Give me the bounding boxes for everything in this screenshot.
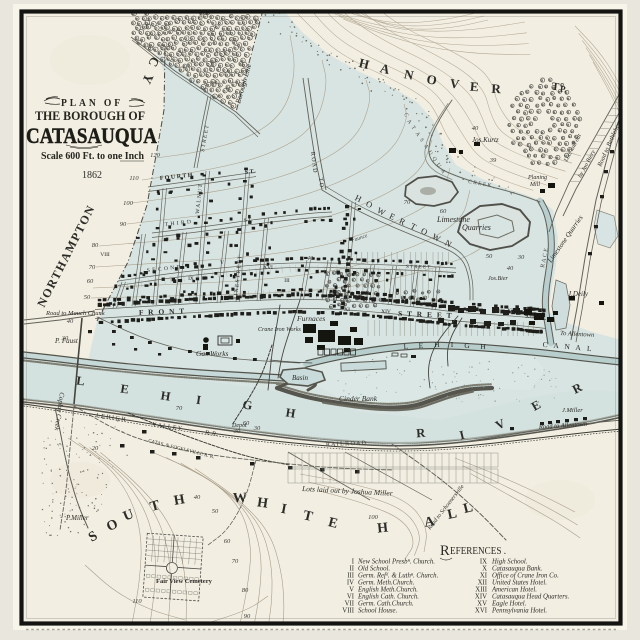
svg-text:50: 50: [212, 508, 219, 515]
svg-text:XIII: XIII: [525, 314, 535, 320]
svg-text:IX: IX: [480, 559, 487, 566]
svg-text:80: 80: [92, 242, 99, 249]
svg-text:R: R: [491, 81, 502, 97]
svg-text:Cinder Bank: Cinder Bank: [339, 394, 378, 403]
svg-text:THE BOROUGH OF: THE BOROUGH OF: [35, 108, 145, 123]
svg-text:60: 60: [224, 538, 231, 545]
svg-text:40: 40: [507, 265, 514, 272]
svg-text:Jos.Kurtz: Jos.Kurtz: [472, 136, 499, 144]
svg-text:W: W: [233, 491, 248, 506]
svg-text:High School.: High School.: [491, 559, 528, 566]
svg-text:Crane Iron Works: Crane Iron Works: [258, 327, 302, 333]
svg-text:S T.: S T.: [244, 217, 254, 224]
svg-text:J.Deily: J.Deily: [568, 290, 589, 298]
svg-text:70: 70: [89, 264, 96, 271]
svg-text:S T.: S T.: [245, 169, 256, 176]
svg-text:S T R E E T: S T R E E T: [406, 265, 430, 270]
svg-text:S T R E E T: S T R E E T: [398, 309, 453, 320]
svg-text:Eagle Hotel.: Eagle Hotel.: [491, 601, 527, 608]
svg-text:H: H: [480, 342, 486, 351]
svg-text:20: 20: [92, 445, 99, 452]
svg-text:30: 30: [233, 428, 241, 435]
svg-text:H: H: [376, 520, 389, 536]
svg-text:50: 50: [486, 253, 493, 260]
svg-text:Germ. Cath.Church.: Germ. Cath.Church.: [358, 601, 414, 608]
svg-text:70: 70: [404, 199, 411, 206]
svg-text:III: III: [347, 573, 355, 580]
svg-text:II: II: [349, 566, 354, 573]
svg-text:Catasauqua Bank.: Catasauqua Bank.: [492, 566, 543, 573]
svg-text:Gas Works: Gas Works: [196, 349, 229, 358]
svg-text:Furnaces: Furnaces: [296, 314, 325, 323]
svg-text:E: E: [469, 79, 479, 95]
svg-text:XI: XI: [344, 307, 350, 313]
svg-text:C: C: [542, 340, 548, 349]
svg-text:Pennsylvania Hotel.: Pennsylvania Hotel.: [491, 608, 547, 615]
svg-text:Scale 600 Ft. to one Inch: Scale 600 Ft. to one Inch: [41, 151, 144, 162]
svg-text:40: 40: [472, 125, 479, 132]
svg-text:V: V: [349, 587, 354, 594]
svg-text:H: H: [434, 340, 440, 349]
svg-text:CATASAUQUA: CATASAUQUA: [26, 123, 157, 148]
svg-text:30: 30: [253, 425, 261, 432]
svg-text:P.: P.: [559, 84, 567, 95]
svg-text:90: 90: [244, 613, 251, 620]
svg-text:40: 40: [194, 494, 201, 501]
svg-text:VI: VI: [347, 594, 355, 601]
svg-text:G: G: [464, 341, 470, 350]
svg-text:Jos.Bier: Jos.Bier: [488, 276, 508, 282]
svg-text:30: 30: [61, 335, 69, 342]
svg-text:100: 100: [123, 200, 134, 207]
svg-text:E: E: [418, 341, 423, 350]
svg-text:American Hotel.: American Hotel.: [491, 587, 537, 594]
svg-text:XIV: XIV: [475, 594, 487, 601]
svg-text:School House.: School House.: [358, 608, 398, 615]
svg-text:United States Hotel.: United States Hotel.: [492, 580, 547, 587]
svg-text:Planing: Planing: [527, 175, 547, 181]
svg-text:90: 90: [120, 221, 127, 228]
svg-text:110: 110: [129, 175, 139, 182]
svg-text:P.Miller: P.Miller: [65, 514, 89, 522]
svg-text:IV: IV: [347, 580, 354, 587]
svg-text:30: 30: [517, 254, 525, 261]
svg-text:XVI: XVI: [263, 265, 273, 271]
svg-text:39: 39: [489, 157, 497, 164]
svg-text:IV: IV: [410, 296, 416, 302]
svg-text:XI: XI: [480, 573, 488, 580]
svg-text:XII: XII: [507, 308, 515, 314]
svg-text:110: 110: [132, 598, 142, 605]
svg-text:Germ. Refᵈ. & Luthⁿ. Church.: Germ. Refᵈ. & Luthⁿ. Church.: [358, 573, 439, 580]
svg-text:EFERENCES .: EFERENCES .: [450, 546, 506, 557]
svg-text:100: 100: [368, 514, 379, 521]
svg-text:1862: 1862: [82, 170, 102, 181]
svg-text:X: X: [482, 566, 487, 573]
svg-text:Road to Mauch Chunk: Road to Mauch Chunk: [45, 310, 105, 317]
svg-text:English Meth.Church.: English Meth.Church.: [357, 587, 418, 594]
svg-text:J.Miller: J.Miller: [562, 407, 583, 414]
svg-text:60: 60: [87, 278, 94, 285]
svg-text:III: III: [284, 278, 290, 284]
svg-text:Fair View Cemetery: Fair View Cemetery: [156, 578, 213, 585]
svg-text:II: II: [250, 184, 254, 190]
svg-text:V: V: [220, 260, 224, 266]
svg-text:VIII: VIII: [100, 252, 110, 258]
svg-text:English Cath. Church.: English Cath. Church.: [357, 594, 419, 601]
svg-text:120: 120: [150, 152, 161, 159]
svg-text:XIV: XIV: [381, 309, 391, 315]
svg-text:IX: IX: [188, 276, 194, 282]
svg-text:New School Presbⁿ. Church.: New School Presbⁿ. Church.: [357, 559, 435, 566]
svg-text:XVI: XVI: [475, 608, 488, 615]
svg-text:XV: XV: [477, 601, 487, 608]
svg-text:50: 50: [84, 294, 91, 301]
svg-text:70: 70: [232, 558, 239, 565]
svg-text:80: 80: [242, 587, 249, 594]
svg-text:XII: XII: [478, 580, 488, 587]
svg-text:Basin: Basin: [292, 374, 308, 382]
svg-text:60: 60: [243, 420, 250, 427]
svg-text:F R O N T: F R O N T: [139, 306, 186, 317]
svg-text:Old School.: Old School.: [358, 566, 390, 573]
svg-text:40: 40: [307, 255, 314, 262]
svg-text:VII: VII: [345, 601, 355, 608]
svg-text:T O: T O: [317, 178, 324, 189]
svg-text:Quarries: Quarries: [462, 223, 491, 232]
svg-text:X: X: [433, 302, 437, 308]
svg-text:R: R: [440, 543, 450, 559]
svg-text:VIII: VIII: [342, 608, 354, 615]
svg-text:Office of Crane Iron Co.: Office of Crane Iron Co.: [492, 573, 559, 580]
svg-text:70: 70: [176, 405, 183, 412]
svg-text:Mill: Mill: [529, 182, 540, 188]
svg-text:60: 60: [440, 208, 447, 215]
svg-text:40: 40: [67, 318, 74, 325]
svg-text:XIII: XIII: [475, 587, 487, 594]
svg-text:H: H: [256, 495, 269, 511]
svg-text:Germ. Meth.Church.: Germ. Meth.Church.: [358, 580, 415, 587]
svg-text:Catasauqua Head Quarters.: Catasauqua Head Quarters.: [492, 594, 570, 601]
